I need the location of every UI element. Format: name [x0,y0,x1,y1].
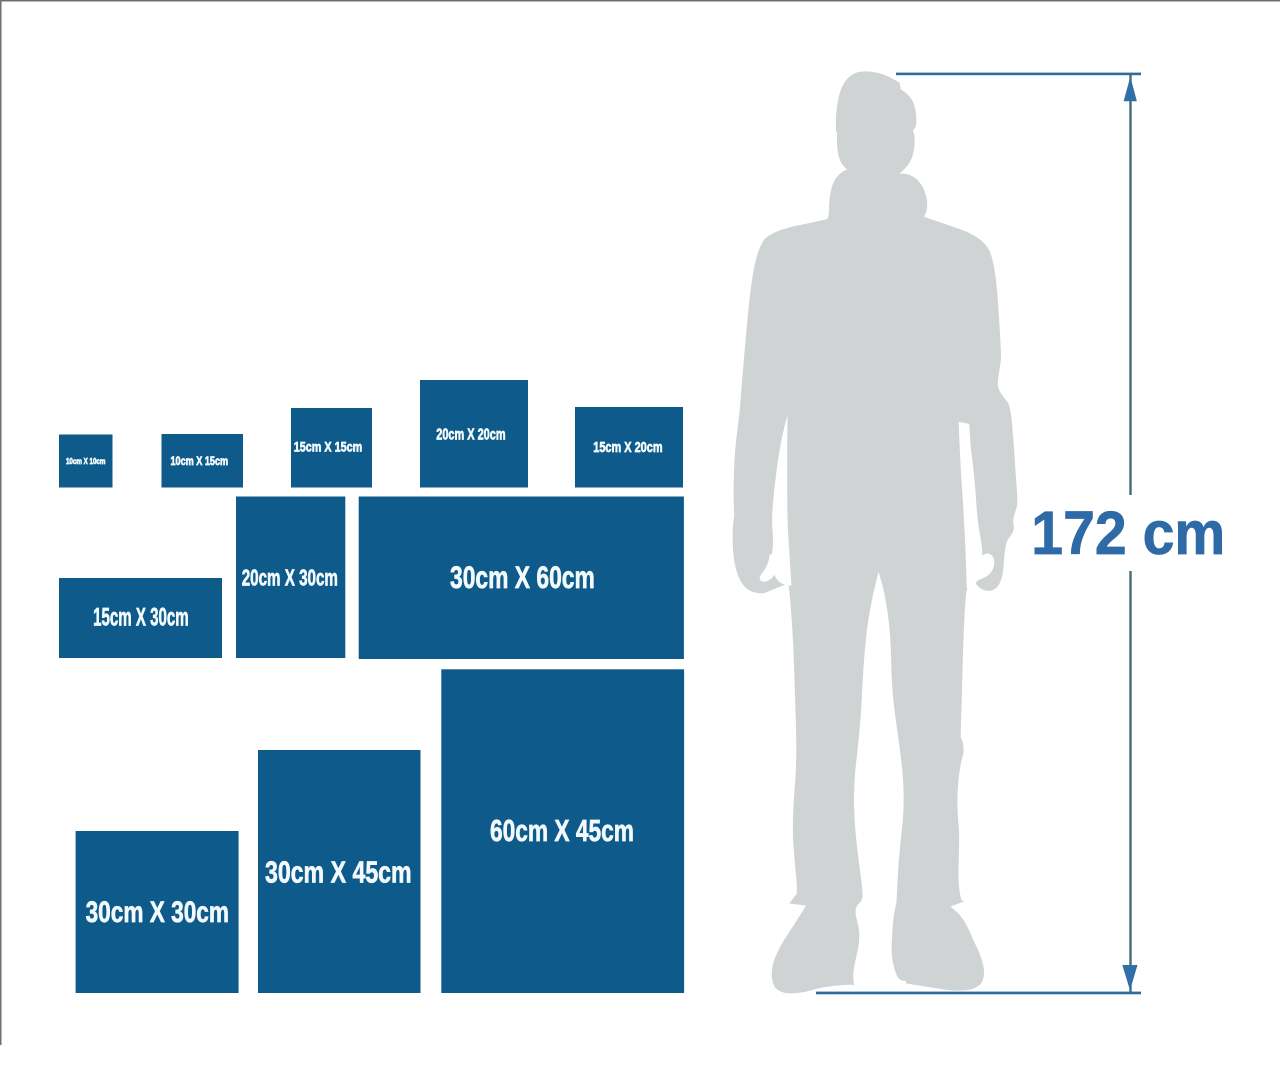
svg-text:20cm X 20cm: 20cm X 20cm [436,426,505,443]
svg-text:30cm X 60cm: 30cm X 60cm [450,560,595,595]
svg-text:172 cm: 172 cm [1031,499,1225,567]
svg-text:15cm X 20cm: 15cm X 20cm [593,440,662,456]
svg-text:30cm X 45cm: 30cm X 45cm [265,855,412,890]
svg-text:60cm X 45cm: 60cm X 45cm [490,813,634,848]
svg-text:15cm X 30cm: 15cm X 30cm [93,605,189,632]
svg-text:10cm X 15cm: 10cm X 15cm [170,454,228,468]
svg-text:10cm X 10cm: 10cm X 10cm [66,456,106,466]
svg-text:15cm X 15cm: 15cm X 15cm [294,439,362,455]
svg-text:30cm X 30cm: 30cm X 30cm [86,896,229,929]
svg-text:20cm X 30cm: 20cm X 30cm [242,565,338,591]
